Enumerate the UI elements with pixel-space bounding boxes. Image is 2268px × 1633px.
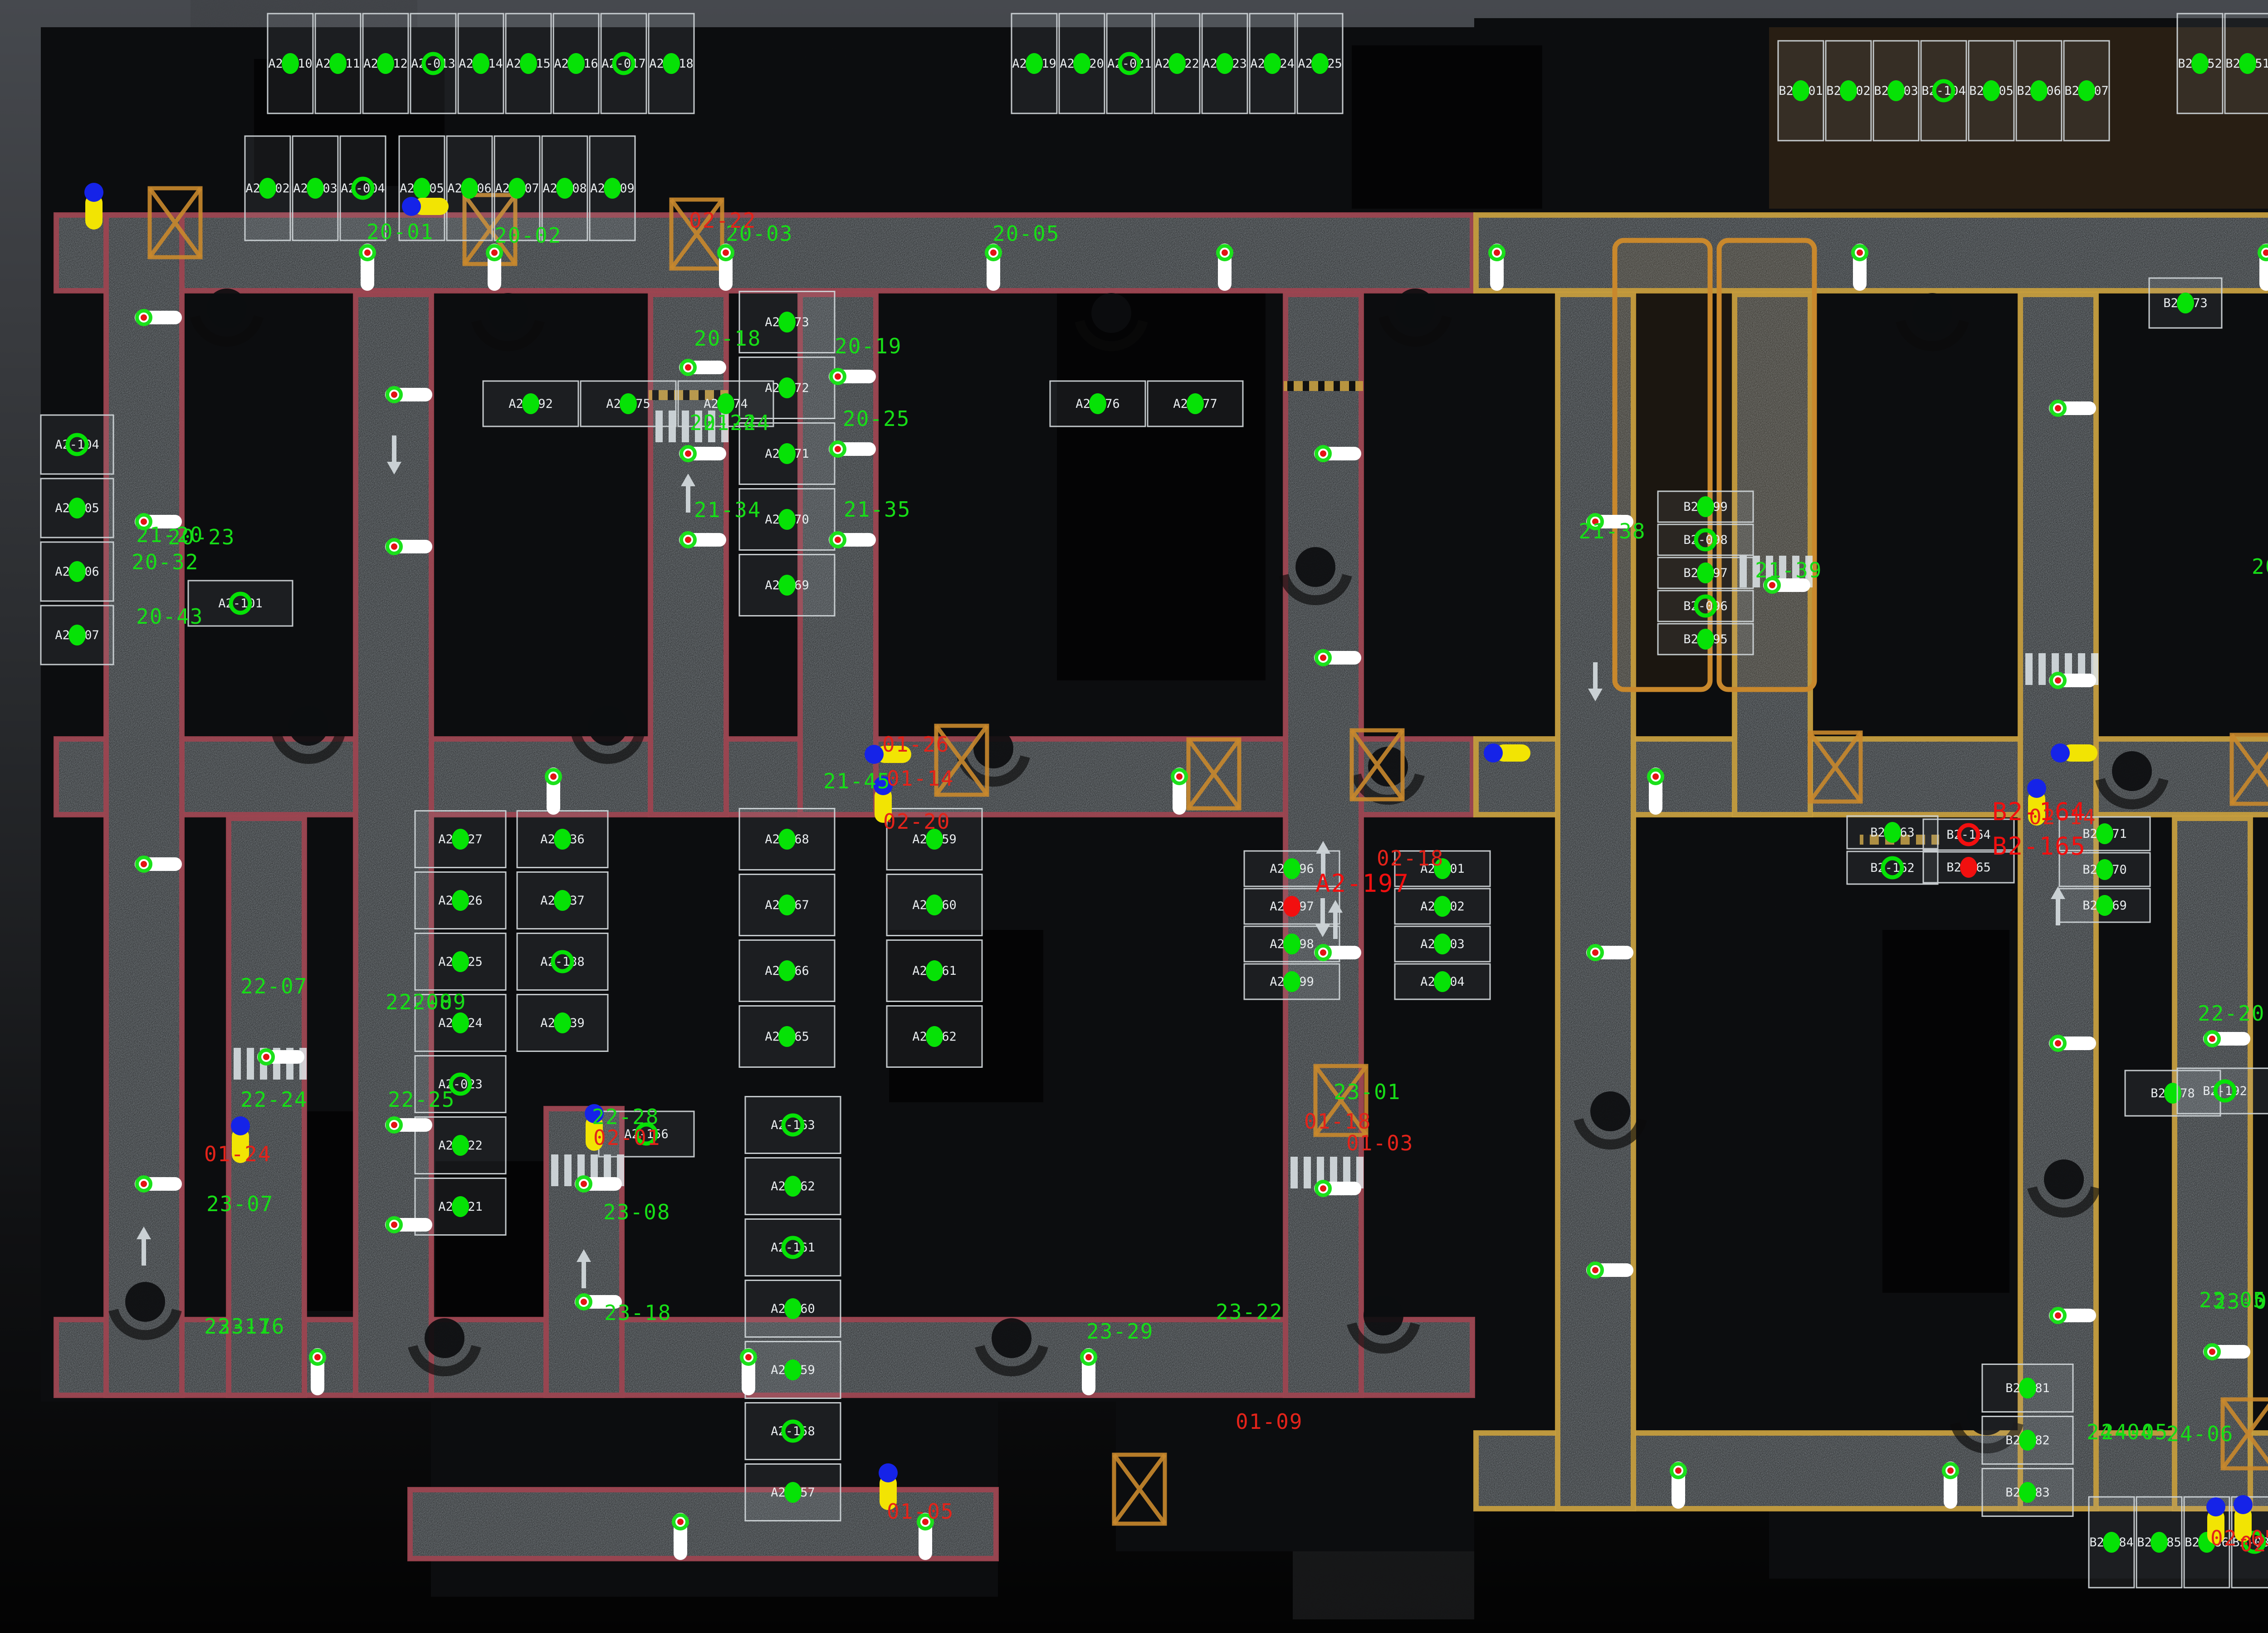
slot-dot-filled-green[interactable]: [604, 178, 621, 199]
parking-slot[interactable]: B2-103: [1873, 41, 1919, 141]
parking-slot[interactable]: A2-069: [739, 555, 835, 616]
slot-dot-filled-green[interactable]: [778, 829, 796, 850]
slot-dot-filled-green[interactable]: [784, 1298, 802, 1319]
lane-edge-label: 01-09: [1236, 1409, 1303, 1434]
lane-waypoint[interactable]: [987, 244, 1000, 291]
lane-node-label: 23-29: [1086, 1319, 1154, 1344]
parking-slot[interactable]: A2-075: [581, 381, 676, 426]
pillar: [1912, 293, 1952, 333]
parking-slot[interactable]: A2-065: [739, 1006, 835, 1067]
junction-marker[interactable]: [402, 197, 449, 216]
lane-waypoint[interactable]: [2259, 244, 2268, 291]
slot-dot-filled-green[interactable]: [2096, 895, 2113, 916]
lane-waypoint[interactable]: [385, 388, 432, 401]
lane-waypoint[interactable]: [135, 1177, 182, 1191]
slot-dot-filled-green[interactable]: [554, 829, 571, 850]
parking-slot[interactable]: B2-082: [1982, 1417, 2073, 1464]
lane-waypoint[interactable]: [2203, 1032, 2250, 1046]
parking-slot[interactable]: A2-138: [517, 934, 608, 990]
parking-slot[interactable]: B2-105: [1969, 41, 2014, 141]
waypoint-core-icon: [550, 773, 557, 780]
parking-slot-id: A2-101: [218, 596, 263, 611]
slot-dot-filled-green[interactable]: [778, 509, 796, 530]
lane-waypoint[interactable]: [679, 361, 726, 374]
slot-dot-filled-green[interactable]: [1697, 496, 1714, 517]
parking-slot[interactable]: B2-083: [1982, 1469, 2073, 1516]
parking-slot[interactable]: A2-199: [1244, 964, 1339, 999]
parking-slot-id: B2-098: [1683, 533, 1728, 547]
waypoint-core-icon: [1857, 249, 1863, 256]
waypoint-core-icon: [314, 1354, 321, 1360]
slot-dot-filled-green[interactable]: [784, 1176, 802, 1197]
parking-slot[interactable]: A2-039: [517, 995, 608, 1051]
lane-waypoint[interactable]: [257, 1050, 304, 1064]
slot-dot-filled-green[interactable]: [452, 890, 469, 911]
parking-slot-id: B2-164: [1946, 828, 1991, 842]
slot-dot-filled-green[interactable]: [778, 377, 796, 398]
junction-cap-icon: [84, 183, 103, 202]
lane-waypoint[interactable]: [135, 311, 182, 324]
lane-edge-label: 02-20: [883, 809, 950, 834]
lane-node-label: 23-07: [206, 1192, 274, 1216]
parking-slot[interactable]: A2-104: [41, 415, 113, 474]
parking-slot[interactable]: A2-157: [745, 1464, 841, 1521]
parking-slot-id: A2-163: [771, 1118, 815, 1132]
lane-waypoint[interactable]: [1586, 1263, 1633, 1277]
slot-dot-filled-green[interactable]: [554, 1012, 571, 1033]
slot-dot-filled-green[interactable]: [1283, 971, 1300, 992]
slot-dot-filled-green[interactable]: [778, 895, 796, 915]
waypoint-core-icon: [391, 391, 397, 398]
slot-dot-filled-green[interactable]: [926, 1026, 943, 1047]
lane-node-label: 24-06: [2166, 1422, 2234, 1446]
slot-dot-filled-green[interactable]: [778, 312, 796, 332]
slot-dot-filled-green[interactable]: [2078, 80, 2095, 101]
parking-slot[interactable]: B2-101: [1778, 41, 1823, 141]
parking-slot[interactable]: A2-023: [1202, 14, 1247, 113]
slot-dot-filled-green[interactable]: [452, 829, 469, 850]
parking-slot[interactable]: B2-084: [2089, 1497, 2134, 1588]
lane-waypoint[interactable]: [2049, 401, 2096, 415]
parking-slot[interactable]: A2-101: [188, 581, 293, 626]
slot-dot-filled-red[interactable]: [1960, 857, 1977, 878]
parking-slot[interactable]: A2-061: [887, 940, 982, 1002]
waypoint-core-icon: [1085, 1354, 1092, 1360]
waypoint-core-icon: [491, 249, 498, 256]
parking-slot[interactable]: A2-025: [415, 934, 506, 990]
parking-slot[interactable]: A2-068: [739, 809, 835, 870]
lane-waypoint[interactable]: [2049, 1037, 2096, 1050]
pillar: [488, 293, 528, 333]
parking-slot[interactable]: A2-072: [739, 357, 835, 419]
parking-slot[interactable]: B2-104: [1921, 41, 1966, 141]
parking-slot-id: A2-013: [411, 57, 455, 71]
slot-dot-filled-green[interactable]: [1434, 896, 1451, 917]
lane-node-label: 24-05: [2101, 1420, 2168, 1444]
slot-dot-filled-green[interactable]: [2030, 80, 2048, 101]
parking-slot[interactable]: B2-052: [2177, 14, 2223, 113]
junction-marker[interactable]: [2051, 743, 2097, 763]
pillar: [1364, 1296, 1403, 1335]
slot-dot-filled-green[interactable]: [556, 178, 573, 199]
slot-dot-filled-green[interactable]: [554, 890, 571, 911]
parking-slot[interactable]: B2-106: [2016, 41, 2062, 141]
lane-node-label: 22-25: [388, 1087, 455, 1112]
slot-dot-filled-green[interactable]: [508, 178, 526, 199]
slot-dot-filled-green[interactable]: [1434, 934, 1451, 954]
parking-slot[interactable]: B2-085: [2136, 1497, 2182, 1588]
slot-dot-filled-green[interactable]: [452, 1012, 469, 1033]
lane-waypoint[interactable]: [1944, 1462, 1957, 1509]
lane-noise: [54, 737, 1474, 816]
parking-slot[interactable]: A2-017: [601, 14, 646, 113]
parking-slot[interactable]: B2-192: [2177, 1068, 2268, 1114]
parking-slot[interactable]: A2-011: [315, 14, 361, 113]
junction-marker[interactable]: [84, 183, 103, 230]
slot-dot-filled-green[interactable]: [472, 53, 489, 74]
slot-dot-filled-green[interactable]: [1264, 53, 1281, 74]
slot-dot-filled-green[interactable]: [1697, 629, 1714, 650]
lane-edge-label: 02-09: [2240, 1532, 2268, 1556]
lane-node-label: 22-20: [2198, 1001, 2265, 1026]
slot-dot-filled-green[interactable]: [778, 575, 796, 596]
crosswalk-stripe: [2025, 653, 2033, 685]
waypoint-core-icon: [364, 249, 371, 256]
slot-dot-filled-green[interactable]: [926, 960, 943, 981]
slot-dot-filled-green[interactable]: [2239, 53, 2256, 74]
lane-node-label: 21-39: [1755, 558, 1822, 582]
waypoint-core-icon: [1222, 249, 1228, 256]
waypoint-core-icon: [391, 543, 397, 550]
parking-slot[interactable]: A2-203: [1395, 926, 1490, 962]
parking-slot[interactable]: B2-095: [1658, 624, 1753, 655]
slam-floor-map: A2-002A2-003A2-004A2-005A2-006A2-007A2-0…: [0, 0, 2268, 1633]
lane-waypoint[interactable]: [385, 1218, 432, 1232]
slot-dot-filled-green[interactable]: [1168, 53, 1186, 74]
slot-dot-filled-green[interactable]: [1026, 53, 1043, 74]
slot-dot-filled-green[interactable]: [1983, 80, 2000, 101]
waypoint-core-icon: [1320, 450, 1326, 457]
slot-dot-filled-green[interactable]: [784, 1359, 802, 1380]
lane-waypoint[interactable]: [361, 244, 374, 291]
parking-slot[interactable]: B2-051: [2225, 14, 2268, 113]
slot-dot-filled-green[interactable]: [567, 53, 585, 74]
lane-edge-label: 02-22: [689, 208, 756, 233]
parking-slot[interactable]: A2-067: [739, 875, 835, 936]
lane-waypoint[interactable]: [829, 370, 876, 383]
lane-waypoint[interactable]: [2203, 1345, 2250, 1359]
waypoint-core-icon: [835, 537, 841, 543]
parking-slot[interactable]: A2-015: [506, 14, 551, 113]
parking-slot[interactable]: A2-016: [553, 14, 599, 113]
parking-slot[interactable]: A2-002: [245, 136, 290, 240]
parking-slot[interactable]: A2-062: [887, 1006, 982, 1067]
waypoint-core-icon: [1652, 773, 1659, 780]
slot-dot-filled-green[interactable]: [1434, 971, 1451, 992]
lane-waypoint[interactable]: [679, 533, 726, 547]
parking-slot[interactable]: A2-105: [41, 479, 113, 538]
pillar: [1091, 293, 1131, 333]
slot-dot-filled-green[interactable]: [926, 895, 943, 915]
slot-dot-filled-green[interactable]: [1697, 562, 1714, 583]
slot-dot-filled-green[interactable]: [2151, 1532, 2168, 1553]
slot-dot-filled-green[interactable]: [520, 53, 537, 74]
parking-slot[interactable]: A2-060: [887, 875, 982, 936]
lane-node-label: 23-01: [1334, 1080, 1401, 1104]
lane-waypoint[interactable]: [1314, 651, 1361, 665]
waypoint-core-icon: [835, 446, 841, 452]
garage-map-canvas: A2-002A2-003A2-004A2-005A2-006A2-007A2-0…: [0, 0, 2268, 1633]
slot-dot-filled-green[interactable]: [2191, 53, 2209, 74]
slot-dot-filled-green[interactable]: [1283, 858, 1300, 879]
parking-slot[interactable]: A2-160: [745, 1281, 841, 1337]
lane-node-label: 20-18: [694, 326, 761, 351]
junction-cap-icon: [2234, 1495, 2253, 1514]
slot-dot-filled-green[interactable]: [1216, 53, 1233, 74]
parking-slot-id: A2-138: [540, 955, 585, 969]
waypoint-core-icon: [2209, 1036, 2215, 1042]
lane-waypoint[interactable]: [1672, 1462, 1685, 1509]
lane-node-label: 20-41: [2252, 554, 2268, 579]
pillar: [2112, 751, 2152, 791]
junction-cap-icon: [402, 197, 421, 216]
parking-slot[interactable]: A2-024: [1250, 14, 1295, 113]
parking-slot[interactable]: A2-014: [458, 14, 503, 113]
parking-slot[interactable]: B2-099: [1658, 491, 1753, 522]
lane-noise: [104, 213, 184, 1397]
lane-waypoint[interactable]: [311, 1348, 324, 1395]
lane-waypoint[interactable]: [742, 1348, 755, 1395]
parking-slot[interactable]: A2-158: [745, 1403, 841, 1460]
lane-waypoint[interactable]: [488, 244, 501, 291]
junction-cap-icon: [231, 1116, 250, 1135]
lane-waypoint[interactable]: [1218, 244, 1232, 291]
parking-slot[interactable]: A2-204: [1395, 964, 1490, 999]
waypoint-core-icon: [581, 1181, 587, 1187]
lane-waypoint[interactable]: [2049, 674, 2096, 687]
junction-cap-icon: [1484, 743, 1503, 763]
lane-waypoint[interactable]: [829, 533, 876, 547]
lane-waypoint[interactable]: [135, 857, 182, 871]
lane-node-label: 21-34: [694, 498, 761, 522]
lane-noise: [408, 1488, 998, 1560]
slot-dot-filled-green[interactable]: [1884, 822, 1901, 843]
slot-dot-filled-green[interactable]: [1887, 80, 1905, 101]
slot-dot-filled-green[interactable]: [522, 393, 539, 414]
lane-waypoint[interactable]: [575, 1177, 622, 1191]
pillar: [1295, 547, 1335, 587]
parking-slot[interactable]: A2-022: [1154, 14, 1200, 113]
slot-dot-filled-green[interactable]: [2096, 859, 2113, 880]
waypoint-core-icon: [263, 1054, 269, 1060]
crosswalk-stripe: [551, 1154, 558, 1186]
slot-dot-filled-green[interactable]: [784, 1482, 802, 1503]
lane-edge-label: 02-01: [593, 1125, 660, 1150]
lane-waypoint[interactable]: [385, 1118, 432, 1132]
crosswalk-stripe: [234, 1048, 241, 1080]
waypoint-core-icon: [1592, 1267, 1598, 1273]
slot-dot-filled-green[interactable]: [2019, 1430, 2036, 1451]
crosswalk-stripe: [2038, 653, 2046, 685]
slot-dot-filled-green[interactable]: [2177, 293, 2194, 313]
parking-slot[interactable]: A2-092: [483, 381, 578, 426]
slot-dot-filled-green[interactable]: [778, 960, 796, 981]
waypoint-core-icon: [2055, 405, 2061, 411]
parking-slot[interactable]: A2-163: [745, 1097, 841, 1154]
parking-slot-id: A2-017: [601, 57, 646, 71]
junction-cap-icon: [2027, 779, 2046, 798]
pillar: [1395, 288, 1435, 328]
waypoint-core-icon: [2055, 1040, 2061, 1046]
lane-waypoint[interactable]: [1314, 1182, 1361, 1195]
slot-dot-filled-green[interactable]: [452, 951, 469, 972]
parking-slot[interactable]: B2-097: [1658, 557, 1753, 588]
slot-dot-filled-green[interactable]: [1073, 53, 1090, 74]
parking-slot[interactable]: A2-026: [415, 872, 506, 929]
parking-slot[interactable]: A2-161: [745, 1219, 841, 1276]
slot-dot-filled-green[interactable]: [620, 393, 637, 414]
slot-dot-filled-green[interactable]: [2019, 1378, 2036, 1398]
lane-waypoint[interactable]: [719, 244, 733, 291]
parking-slot[interactable]: B2-098: [1658, 524, 1753, 555]
parking-slot[interactable]: A2-107: [41, 606, 113, 665]
void-room: [1882, 930, 2009, 1293]
slot-dot-filled-green[interactable]: [663, 53, 680, 74]
waypoint-core-icon: [1592, 949, 1598, 956]
lane-waypoint[interactable]: [1649, 768, 1662, 815]
parking-slot[interactable]: A2-159: [745, 1342, 841, 1398]
parking-slot[interactable]: B2-081: [1982, 1364, 2073, 1412]
lane-node-label: 20-12: [2266, 225, 2268, 249]
lane-waypoint[interactable]: [679, 447, 726, 460]
junction-marker[interactable]: [1484, 743, 1530, 763]
parking-slot[interactable]: A2-037: [517, 872, 608, 929]
lane-edge-label: 01-24: [204, 1142, 271, 1166]
lane-node-label: 22-09: [399, 990, 466, 1014]
slot-dot-filled-green[interactable]: [452, 1135, 469, 1156]
pillar: [1590, 1091, 1630, 1131]
lane-waypoint[interactable]: [1853, 244, 1867, 291]
slot-dot-filled-green[interactable]: [413, 178, 430, 199]
parking-slot[interactable]: A2-020: [1059, 14, 1105, 113]
parking-slot[interactable]: A2-010: [268, 14, 313, 113]
waypoint-core-icon: [1769, 582, 1775, 588]
lane-waypoint[interactable]: [829, 442, 876, 456]
parking-slot[interactable]: A2-027: [415, 811, 506, 868]
slot-dot-filled-green[interactable]: [282, 53, 299, 74]
lane-edge-label: 01-03: [1346, 1131, 1413, 1155]
lane-waypoint[interactable]: [1586, 946, 1633, 959]
lane-node-label: 20-43: [136, 604, 203, 629]
lane-waypoint[interactable]: [547, 768, 560, 815]
lane-node-label: 23-18: [604, 1301, 671, 1325]
lane-waypoint[interactable]: [385, 540, 432, 553]
parking-slot[interactable]: A2-077: [1148, 381, 1243, 426]
waypoint-core-icon: [581, 1299, 587, 1305]
parking-slot[interactable]: A2-036: [517, 811, 608, 868]
slot-dot-filled-green[interactable]: [461, 178, 478, 199]
parking-slot[interactable]: B2-107: [2064, 41, 2109, 141]
parking-slot[interactable]: A2-021: [1107, 14, 1152, 113]
slot-dot-filled-green[interactable]: [307, 178, 324, 199]
junction-cap-icon: [865, 745, 884, 764]
pillar: [2044, 1159, 2084, 1199]
slot-dot-filled-green[interactable]: [2103, 1532, 2120, 1553]
slot-dot-filled-green[interactable]: [2096, 823, 2113, 844]
slot-dot-filled-green[interactable]: [1792, 80, 1809, 101]
parking-slot[interactable]: A2-162: [745, 1158, 841, 1215]
parking-slot-id: A2-021: [1107, 57, 1152, 71]
waypoint-core-icon: [685, 537, 691, 543]
parking-slot[interactable]: A2-006: [447, 136, 492, 240]
parking-slot[interactable]: A2-012: [363, 14, 408, 113]
waypoint-core-icon: [990, 249, 997, 256]
lane-waypoint[interactable]: [1314, 447, 1361, 460]
slot-dot-filled-green[interactable]: [1187, 393, 1204, 414]
parking-slot[interactable]: A2-106: [41, 542, 113, 601]
lane-waypoint[interactable]: [1490, 244, 1504, 291]
parking-slot[interactable]: A2-025: [1297, 14, 1343, 113]
crosswalk-stripe: [247, 1048, 254, 1080]
lane-waypoint[interactable]: [1082, 1348, 1095, 1395]
slot-fault-label: B2-164: [1992, 797, 2086, 826]
lane-waypoint[interactable]: [1314, 946, 1361, 959]
slot-dot-filled-green[interactable]: [1311, 53, 1329, 74]
void-room: [1352, 45, 1542, 209]
lane-node-label: 22-07: [240, 974, 308, 998]
slot-dot-filled-green[interactable]: [2019, 1482, 2036, 1503]
parking-slot[interactable]: A2-003: [293, 136, 338, 240]
lane-waypoint[interactable]: [674, 1513, 687, 1560]
slot-dot-filled-green[interactable]: [1283, 934, 1300, 954]
slot-dot-filled-green[interactable]: [1089, 393, 1106, 414]
parking-slot[interactable]: A2-013: [411, 14, 456, 113]
slot-dot-filled-green[interactable]: [778, 1026, 796, 1047]
pillar: [125, 1282, 165, 1322]
slot-dot-filled-green[interactable]: [452, 1196, 469, 1217]
slot-dot-filled-green[interactable]: [68, 561, 86, 582]
slot-dot-filled-green[interactable]: [68, 625, 86, 645]
parking-slot[interactable]: B2-073: [2149, 278, 2222, 328]
lane-waypoint[interactable]: [1173, 768, 1186, 815]
slot-dot-filled-red[interactable]: [1283, 896, 1300, 917]
parking-slot[interactable]: B2-169: [2059, 889, 2150, 922]
parking-slot[interactable]: B2-096: [1658, 591, 1753, 621]
parking-slot-id: A2-161: [771, 1241, 815, 1255]
slot-dot-filled-green[interactable]: [1840, 80, 1857, 101]
slot-dot-filled-green[interactable]: [68, 498, 86, 518]
parking-slot[interactable]: A2-066: [739, 940, 835, 1002]
slot-dot-filled-green[interactable]: [259, 178, 276, 199]
speed-bump-dash: [1334, 381, 1340, 391]
slot-dot-filled-green[interactable]: [778, 443, 796, 464]
parking-slot[interactable]: A2-076: [1050, 381, 1145, 426]
lane-node-label: 20-25: [843, 406, 910, 431]
waypoint-core-icon: [723, 249, 729, 256]
waypoint-core-icon: [685, 364, 691, 371]
slot-dot-filled-green[interactable]: [329, 53, 347, 74]
lane-node-label: 20-19: [835, 334, 902, 358]
lane-waypoint[interactable]: [2049, 1309, 2096, 1322]
parking-slot[interactable]: B2-102: [1826, 41, 1871, 141]
pillar: [588, 706, 628, 746]
parking-slot[interactable]: A2-019: [1012, 14, 1057, 113]
slot-dot-filled-green[interactable]: [377, 53, 394, 74]
parking-slot[interactable]: A2-009: [590, 136, 635, 240]
lane-node-label: 20-02: [494, 223, 562, 248]
parking-slot[interactable]: A2-018: [649, 14, 694, 113]
lane-node-label: 23-08: [603, 1200, 670, 1224]
